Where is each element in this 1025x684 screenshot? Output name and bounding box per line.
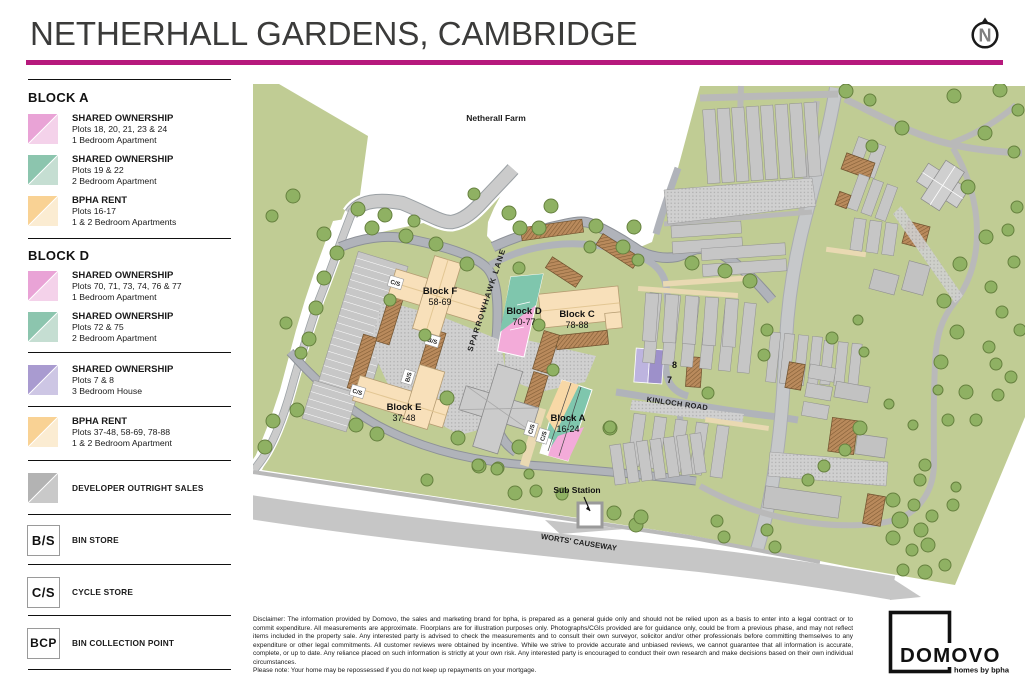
svg-text:Sub Station: Sub Station [553,485,600,495]
svg-text:8: 8 [672,360,677,370]
svg-text:Netherall Farm: Netherall Farm [466,113,526,123]
svg-text:78-88: 78-88 [565,320,588,330]
svg-text:70-77: 70-77 [512,317,535,327]
svg-text:Block F: Block F [423,286,458,297]
svg-text:homes by bpha: homes by bpha [954,666,1010,675]
svg-text:Block E: Block E [387,402,422,413]
svg-text:16-24: 16-24 [556,424,579,434]
svg-text:37-48: 37-48 [392,413,415,423]
svg-text:Block D: Block D [506,306,542,317]
svg-text:Block A: Block A [550,413,585,424]
svg-text:58-69: 58-69 [428,297,451,307]
svg-text:Block C: Block C [559,309,595,320]
svg-text:7: 7 [667,375,672,385]
svg-text:N: N [979,26,992,46]
